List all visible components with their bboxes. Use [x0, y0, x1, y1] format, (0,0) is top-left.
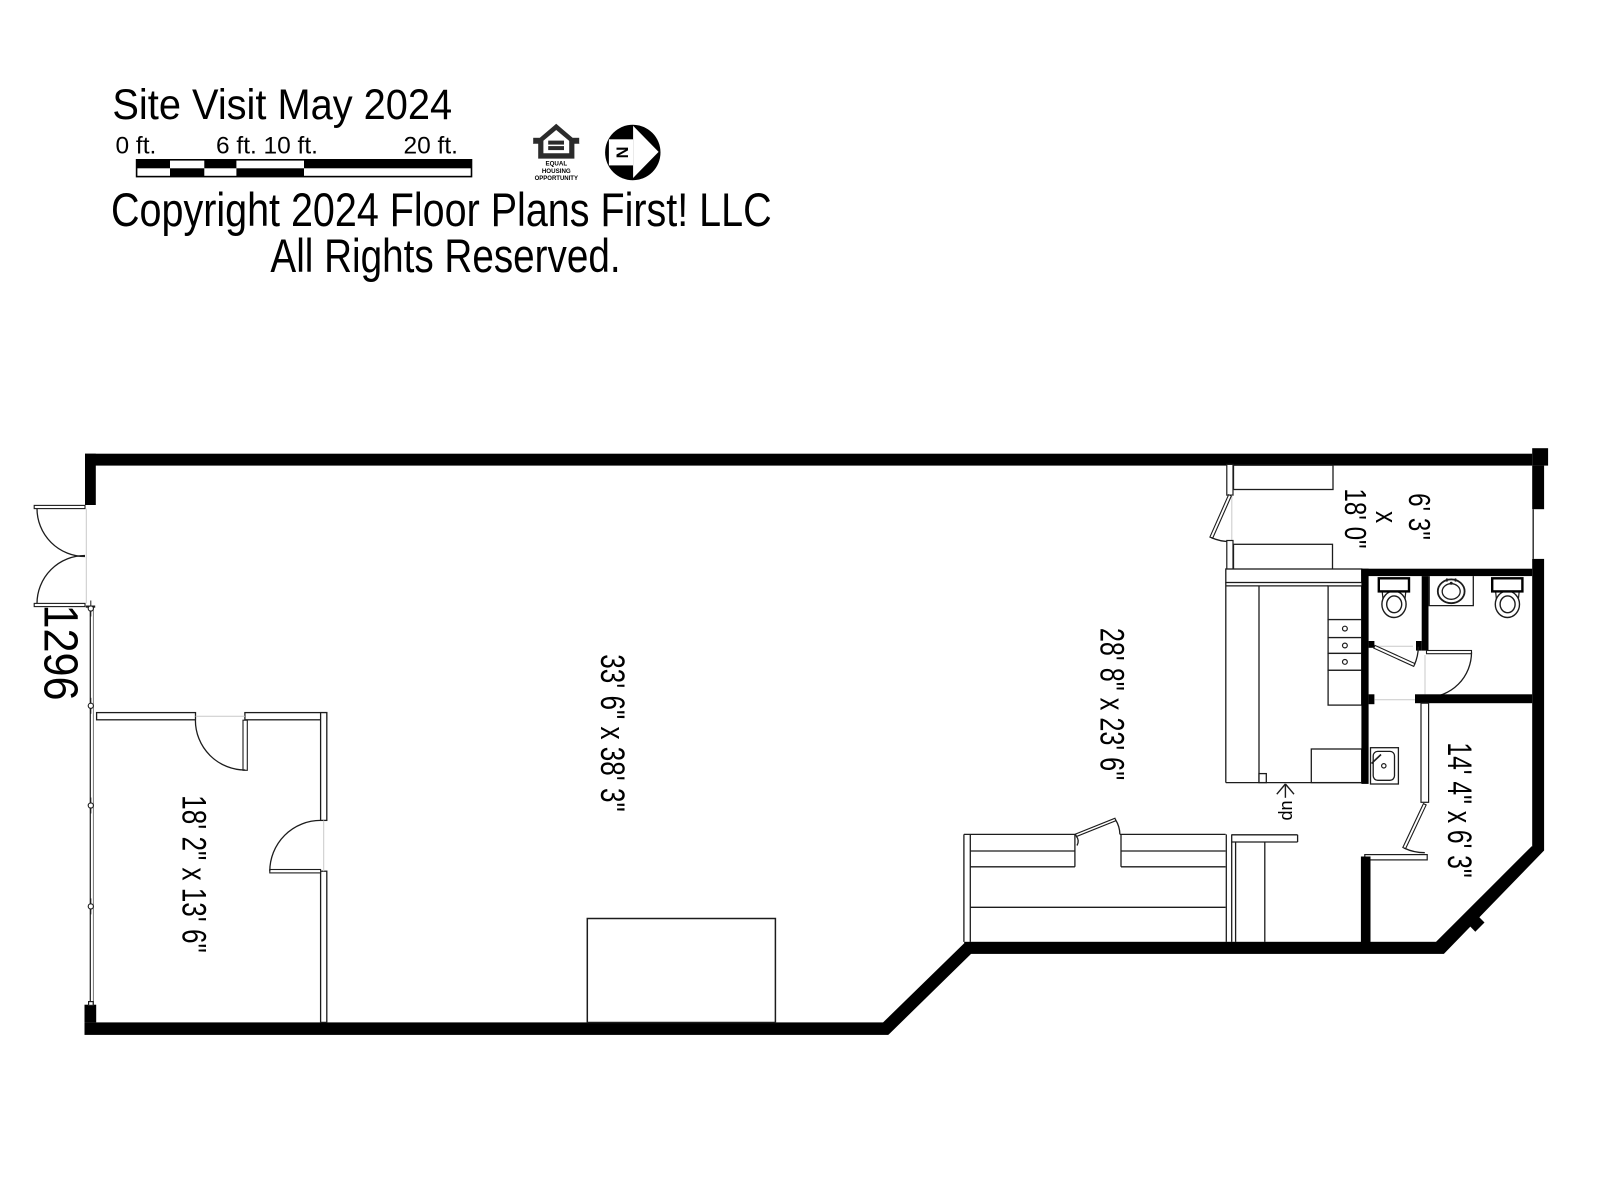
svg-text:Site Visit May 2024: Site Visit May 2024 — [112, 81, 452, 128]
svg-text:N: N — [613, 147, 631, 159]
svg-text:28' 8" x 23' 6": 28' 8" x 23' 6" — [1092, 628, 1129, 780]
svg-text:Copyright 2024 Floor Plans Fir: Copyright 2024 Floor Plans First! LLC — [111, 184, 772, 237]
svg-text:33' 6" x 38' 3": 33' 6" x 38' 3" — [593, 654, 630, 811]
svg-text:20 ft.: 20 ft. — [404, 132, 458, 159]
svg-text:up: up — [1278, 800, 1298, 820]
svg-text:18' 0": 18' 0" — [1338, 488, 1373, 548]
svg-text:10 ft.: 10 ft. — [264, 132, 318, 159]
svg-text:1296: 1296 — [34, 604, 88, 700]
svg-text:x: x — [1369, 511, 1404, 523]
svg-text:6 ft.: 6 ft. — [216, 132, 257, 159]
svg-text:EQUAL: EQUAL — [545, 161, 567, 168]
svg-text:HOUSING: HOUSING — [542, 168, 571, 175]
svg-text:18' 2" x 13' 6": 18' 2" x 13' 6" — [175, 795, 212, 953]
svg-text:OPPORTUNITY: OPPORTUNITY — [535, 176, 578, 182]
svg-text:14' 4" x 6' 3": 14' 4" x 6' 3" — [1440, 742, 1478, 877]
svg-text:0 ft.: 0 ft. — [116, 132, 157, 159]
svg-text:All Rights Reserved.: All Rights Reserved. — [270, 230, 620, 283]
svg-text:6' 3": 6' 3" — [1402, 493, 1437, 540]
